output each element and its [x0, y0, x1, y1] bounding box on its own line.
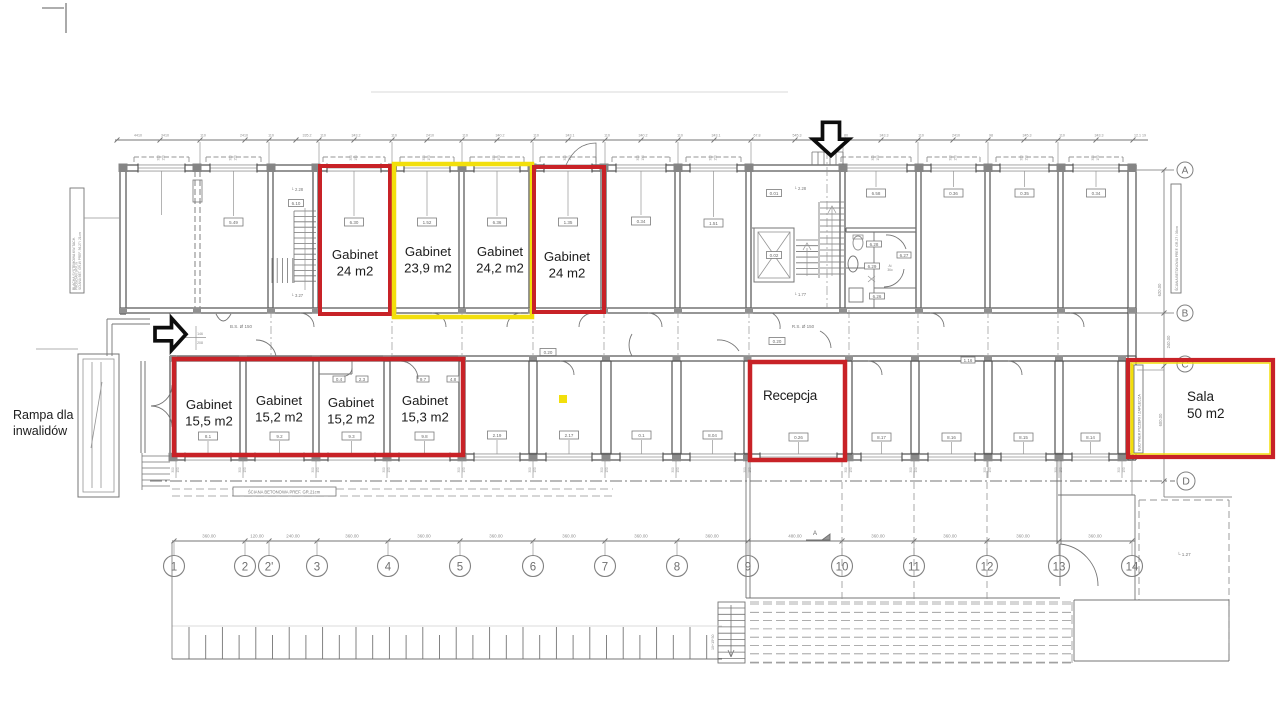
svg-text:A: A [813, 531, 817, 537]
svg-text:Gabinet: Gabinet [402, 393, 449, 408]
svg-text:300: 300 [909, 467, 913, 473]
svg-text:300: 300 [382, 467, 386, 473]
svg-text:98: 98 [989, 134, 993, 138]
svg-text:0.26: 0.26 [794, 435, 803, 440]
svg-text:360.00: 360.00 [634, 534, 648, 539]
svg-text:2.3: 2.3 [359, 377, 366, 382]
svg-text:150: 150 [354, 155, 358, 161]
svg-text:24 m2: 24 m2 [549, 266, 586, 281]
svg-text:360.00: 360.00 [943, 534, 957, 539]
svg-text:BUDYNEK PIZZERI I ZAPLECZA: BUDYNEK PIZZERI I ZAPLECZA [1138, 394, 1142, 451]
svg-text:└ 3.27: └ 3.27 [291, 293, 304, 298]
svg-text:360.00: 360.00 [202, 534, 216, 539]
svg-text:7: 7 [602, 562, 608, 574]
svg-text:300: 300 [563, 155, 567, 161]
svg-text:150: 150 [234, 155, 238, 161]
svg-text:0.34: 0.34 [637, 219, 646, 224]
svg-text:150: 150 [641, 155, 645, 161]
svg-text:0.01: 0.01 [770, 191, 779, 196]
svg-text:240.00: 240.00 [286, 534, 300, 539]
svg-text:150: 150 [176, 467, 180, 473]
svg-text:9.3: 9.3 [348, 434, 355, 439]
svg-text:Recepcja: Recepcja [763, 388, 818, 403]
svg-text:110: 110 [391, 134, 397, 138]
svg-text:└ 2.28: └ 2.28 [291, 187, 304, 192]
svg-text:11: 11 [908, 562, 920, 574]
svg-text:A: A [1182, 166, 1189, 177]
svg-text:360.00: 360.00 [1016, 534, 1030, 539]
svg-text:5.49: 5.49 [229, 220, 238, 225]
svg-text:2.17: 2.17 [565, 433, 574, 438]
svg-text:343.3: 343.3 [880, 134, 889, 138]
svg-text:4: 4 [385, 562, 392, 574]
svg-text:300: 300 [171, 467, 175, 473]
svg-text:120.00: 120.00 [250, 534, 264, 539]
svg-text:Gabinet: Gabinet [544, 249, 591, 264]
svg-text:6.27: 6.27 [900, 253, 909, 258]
svg-text:110: 110 [200, 134, 206, 138]
svg-text:360.00: 360.00 [1088, 534, 1102, 539]
svg-text:300: 300 [636, 155, 640, 161]
svg-text:R.S. Ø 150: R.S. Ø 150 [792, 324, 815, 329]
svg-text:4.8: 4.8 [450, 377, 457, 382]
svg-text:300: 300 [1091, 155, 1095, 161]
svg-text:3: 3 [314, 562, 320, 574]
svg-text:Rampa dla: Rampa dla [13, 408, 73, 422]
svg-text:Gabinet: Gabinet [405, 244, 452, 259]
svg-text:150: 150 [676, 467, 680, 473]
svg-text:2.19: 2.19 [493, 433, 502, 438]
svg-text:150: 150 [849, 467, 853, 473]
svg-text:12: 12 [981, 562, 994, 574]
svg-text:360.00: 360.00 [345, 534, 359, 539]
svg-text:8: 8 [674, 562, 680, 574]
svg-text:110: 110 [462, 134, 468, 138]
svg-text:8.15: 8.15 [1019, 435, 1028, 440]
svg-text:300: 300 [983, 467, 987, 473]
svg-text:300: 300 [844, 467, 848, 473]
svg-text:150: 150 [605, 467, 609, 473]
svg-text:240.00: 240.00 [1166, 335, 1171, 348]
svg-text:600.00: 600.00 [1158, 413, 1163, 426]
svg-text:300: 300 [492, 155, 496, 161]
svg-text:1: 1 [171, 562, 177, 574]
svg-text:6.30: 6.30 [350, 220, 359, 225]
svg-text:80: 80 [844, 134, 848, 138]
svg-text:8.04: 8.04 [708, 433, 717, 438]
svg-text:110: 110 [268, 134, 274, 138]
svg-text:343.2: 343.2 [352, 134, 361, 138]
svg-text:150: 150 [387, 467, 391, 473]
svg-text:150: 150 [988, 467, 992, 473]
svg-text:inwalidów: inwalidów [13, 424, 68, 438]
svg-text:300: 300 [1117, 467, 1121, 473]
svg-text:360.00: 360.00 [705, 534, 719, 539]
svg-text:110: 110 [918, 134, 924, 138]
svg-text:50 m2: 50 m2 [1187, 406, 1225, 421]
svg-text:110: 110 [1059, 134, 1065, 138]
svg-text:300: 300 [311, 467, 315, 473]
svg-text:Gabinet: Gabinet [186, 397, 233, 412]
svg-text:0.35: 0.35 [1020, 191, 1029, 196]
svg-text:343.1: 343.1 [566, 134, 575, 138]
svg-text:15,2 m2: 15,2 m2 [327, 412, 375, 427]
svg-text:300: 300 [238, 467, 242, 473]
svg-text:23,9 m2: 23,9 m2 [404, 261, 452, 276]
svg-text:300: 300 [600, 467, 604, 473]
svg-text:1.52: 1.52 [423, 220, 432, 225]
svg-text:150: 150 [1096, 155, 1100, 161]
svg-text:1.16: 1.16 [964, 358, 973, 363]
svg-text:1.51: 1.51 [709, 221, 718, 226]
svg-text:6.58: 6.58 [872, 191, 881, 196]
svg-text:Gabinet: Gabinet [477, 244, 524, 259]
svg-text:SCIANA BET. GR.W PREF. 36.27 i: SCIANA BET. GR.W PREF. 36.27 i 21cm [78, 232, 82, 290]
svg-text:12.1 19: 12.1 19 [1134, 134, 1146, 138]
svg-text:D: D [1182, 476, 1190, 488]
svg-text:0.34: 0.34 [1092, 191, 1101, 196]
svg-text:110: 110 [604, 134, 610, 138]
svg-text:15,3 m2: 15,3 m2 [401, 410, 449, 425]
svg-text:8.1: 8.1 [205, 434, 212, 439]
svg-text:2410: 2410 [426, 134, 434, 138]
svg-text:2410: 2410 [240, 134, 248, 138]
svg-text:150: 150 [462, 467, 466, 473]
svg-text:343.3: 343.3 [1095, 134, 1104, 138]
svg-text:Sala: Sala [1187, 389, 1215, 404]
svg-text:110: 110 [677, 134, 683, 138]
svg-text:300: 300 [709, 155, 713, 161]
svg-text:150: 150 [1122, 467, 1126, 473]
svg-text:3410: 3410 [161, 134, 169, 138]
svg-text:300: 300 [349, 155, 353, 161]
svg-text:4410: 4410 [134, 134, 142, 138]
svg-text:ŚCIANA BETONOWA PREF. GR.21cm: ŚCIANA BETONOWA PREF. GR.21cm [248, 490, 321, 495]
svg-text:110: 110 [533, 134, 539, 138]
svg-text:360.00: 360.00 [489, 534, 503, 539]
svg-text:0.1: 0.1 [638, 433, 645, 438]
svg-text:8.16: 8.16 [947, 435, 956, 440]
svg-text:10: 10 [836, 562, 849, 574]
svg-text:67.8: 67.8 [754, 134, 761, 138]
svg-text:24,2 m2: 24,2 m2 [476, 261, 524, 276]
svg-text:150: 150 [714, 155, 718, 161]
svg-text:300: 300 [457, 467, 461, 473]
svg-text:B.S. Ø 150: B.S. Ø 150 [230, 324, 253, 329]
svg-text:150: 150 [316, 467, 320, 473]
svg-text:620.00: 620.00 [1157, 283, 1162, 296]
svg-text:150: 150 [876, 155, 880, 161]
svg-text:0.36: 0.36 [949, 191, 958, 196]
svg-text:2410: 2410 [952, 134, 960, 138]
svg-text:6: 6 [530, 562, 536, 574]
svg-text:6.28: 6.28 [870, 242, 879, 247]
svg-text:└ 1.77: └ 1.77 [794, 292, 807, 297]
svg-text:150: 150 [533, 467, 537, 473]
svg-text:6.26: 6.26 [873, 294, 882, 299]
svg-text:300: 300 [1020, 155, 1024, 161]
svg-text:335.2: 335.2 [303, 134, 312, 138]
svg-text:2': 2' [265, 562, 274, 574]
svg-text:14: 14 [1126, 562, 1139, 574]
svg-text:9.2: 9.2 [276, 434, 283, 439]
svg-text:150: 150 [914, 467, 918, 473]
svg-text:15,2 m2: 15,2 m2 [255, 410, 303, 425]
svg-text:Gabinet: Gabinet [256, 393, 303, 408]
svg-text:300: 300 [528, 467, 532, 473]
svg-text:150: 150 [954, 155, 958, 161]
svg-text:8.17: 8.17 [877, 435, 886, 440]
svg-text:480.00: 480.00 [788, 534, 802, 539]
svg-text:0.4: 0.4 [336, 377, 343, 382]
svg-text:└ 1.27: └ 1.27 [1177, 551, 1191, 557]
svg-text:5: 5 [457, 562, 463, 574]
svg-text:150: 150 [162, 155, 166, 161]
svg-text:8.14: 8.14 [1086, 435, 1095, 440]
svg-text:9.8: 9.8 [421, 434, 428, 439]
svg-text:360.00: 360.00 [417, 534, 431, 539]
svg-text:300: 300 [949, 155, 953, 161]
svg-text:0.20: 0.20 [773, 339, 782, 344]
svg-text:300: 300 [229, 155, 233, 161]
svg-text:Gabinet: Gabinet [328, 395, 375, 410]
svg-text:9.7: 9.7 [420, 377, 427, 382]
svg-text:300: 300 [871, 155, 875, 161]
svg-text:0.20: 0.20 [544, 350, 553, 355]
svg-text:360.00: 360.00 [871, 534, 885, 539]
svg-text:1.35: 1.35 [564, 220, 573, 225]
svg-text:6.36: 6.36 [493, 220, 502, 225]
svg-text:360.00: 360.00 [562, 534, 576, 539]
svg-text:300: 300 [157, 155, 161, 161]
svg-text:6.10: 6.10 [292, 201, 301, 206]
svg-text:13: 13 [1053, 562, 1066, 574]
svg-text:B: B [1182, 309, 1189, 320]
svg-text:150: 150 [1025, 155, 1029, 161]
svg-text:Gabinet: Gabinet [332, 247, 379, 262]
svg-text:24 m2: 24 m2 [337, 264, 374, 279]
svg-text:146: 146 [197, 332, 203, 336]
svg-text:150: 150 [497, 155, 501, 161]
svg-text:36o: 36o [887, 268, 893, 272]
svg-text:ŚCIANA BETONOWA PREF. GR.27 i: ŚCIANA BETONOWA PREF. GR.27 i 36cm [1174, 226, 1179, 291]
svg-text:345.3: 345.3 [1023, 134, 1032, 138]
svg-text:0.02: 0.02 [770, 253, 779, 258]
svg-text:150: 150 [427, 155, 431, 161]
svg-text:110: 110 [320, 134, 326, 138]
svg-text:545.3: 545.3 [793, 134, 802, 138]
svg-text:343.1: 343.1 [712, 134, 721, 138]
svg-text:300: 300 [422, 155, 426, 161]
svg-text:└ 2.28: └ 2.28 [794, 186, 807, 191]
svg-text:10+15*30: 10+15*30 [711, 635, 715, 651]
svg-text:6.29: 6.29 [868, 264, 877, 269]
svg-text:340.2: 340.2 [496, 134, 505, 138]
svg-text:208: 208 [197, 341, 203, 345]
svg-text:340.2: 340.2 [639, 134, 648, 138]
svg-text:9: 9 [745, 562, 751, 574]
svg-text:300: 300 [671, 467, 675, 473]
svg-text:15,5 m2: 15,5 m2 [185, 414, 233, 429]
svg-text:150: 150 [243, 467, 247, 473]
svg-text:2: 2 [242, 562, 248, 574]
